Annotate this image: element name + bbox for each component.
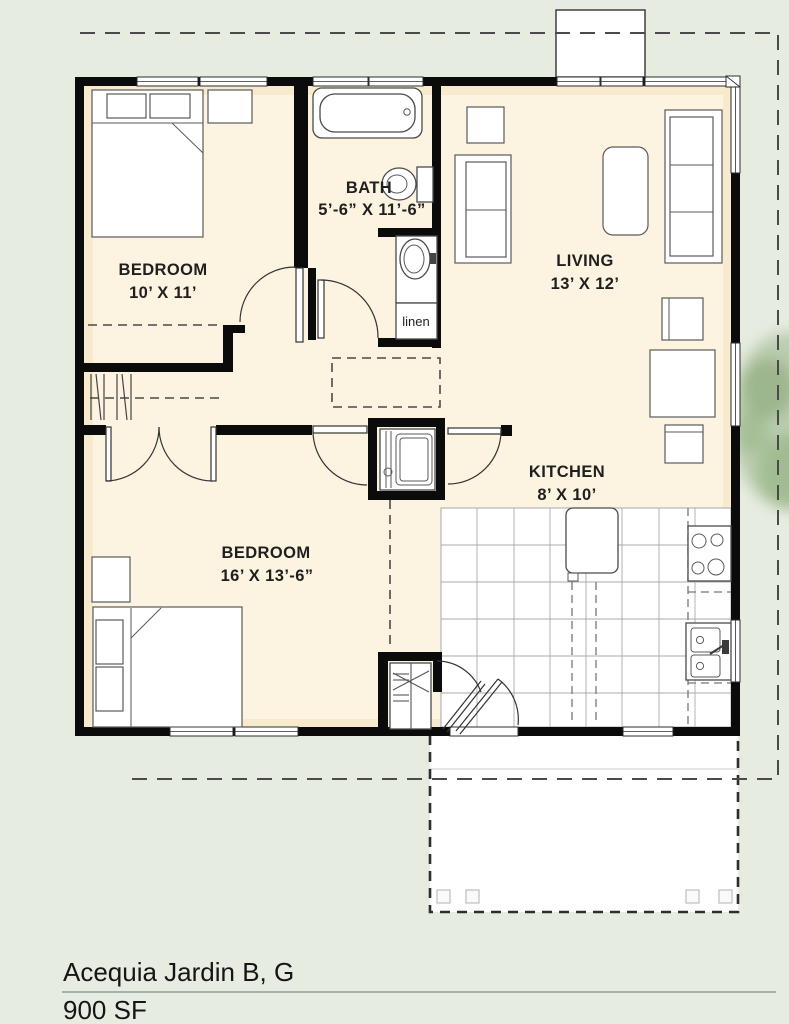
dining-chair-icon (662, 298, 703, 340)
wall-bedroom2-top-left (84, 425, 106, 435)
wall-bath-left-stub (308, 268, 316, 340)
wh-closet (390, 663, 431, 729)
linen-label: linen (402, 314, 429, 329)
vanity-sink-icon (396, 236, 437, 303)
nightstand-icon (92, 557, 130, 602)
house: BEDROOM 10’ X 11’ (75, 76, 740, 736)
bathtub-icon (313, 88, 422, 138)
living-dims: 13’ X 12’ (551, 275, 620, 293)
kitchen-dims: 8’ X 10’ (537, 486, 596, 504)
plan-area: 900 SF (63, 995, 147, 1024)
kitchen-name: KITCHEN (529, 463, 605, 481)
floor-plan-page: BEDROOM 10’ X 11’ (0, 0, 789, 1024)
utility-closet (380, 429, 435, 490)
bed-icon (92, 90, 203, 237)
kitchen-sink-icon (686, 623, 731, 680)
end-table-icon (467, 107, 504, 143)
plan-title: Acequia Jardin B, G (63, 957, 294, 987)
wall-utility-left (368, 418, 377, 500)
bedroom2-dims: 16’ X 13’-6” (221, 567, 314, 585)
patio (430, 735, 738, 912)
refrigerator-icon (566, 508, 618, 581)
wall-wh-closet-right (433, 652, 442, 692)
washer-icon (380, 429, 435, 490)
wall-utility-right (436, 418, 445, 500)
bedroom1-dims: 10’ X 11’ (129, 284, 197, 302)
dining-table-icon (650, 350, 715, 417)
wall-bedroom2-top (216, 425, 312, 435)
sofa-icon (665, 110, 722, 263)
wall-utility-bottom (368, 491, 445, 500)
dresser-icon (208, 90, 252, 123)
bath-dims: 5’-6” X 11’-6” (318, 201, 425, 219)
dining-chair2-icon (665, 425, 703, 463)
bedroom1-name: BEDROOM (119, 261, 208, 279)
bedroom2-name: BEDROOM (222, 544, 311, 562)
bed2-icon (93, 607, 242, 727)
wall-kitchen-door-stub (501, 425, 512, 436)
wall-bedroom1-bath (294, 86, 308, 268)
bath-name: BATH (346, 179, 392, 197)
loveseat-icon (455, 155, 511, 263)
wall-bedroom1-closet (84, 363, 233, 372)
linen-closet: linen (396, 303, 437, 339)
wall-wh-closet-left (378, 652, 388, 732)
floor-plan-drawing: BEDROOM 10’ X 11’ (0, 0, 789, 1024)
coffee-table-icon (603, 147, 648, 235)
stove-icon (688, 526, 731, 581)
wall-closet-right (223, 325, 233, 372)
patio-slab (430, 735, 738, 912)
living-name: LIVING (556, 252, 613, 270)
front-stoop (556, 10, 645, 77)
wall-utility-top (368, 418, 445, 427)
